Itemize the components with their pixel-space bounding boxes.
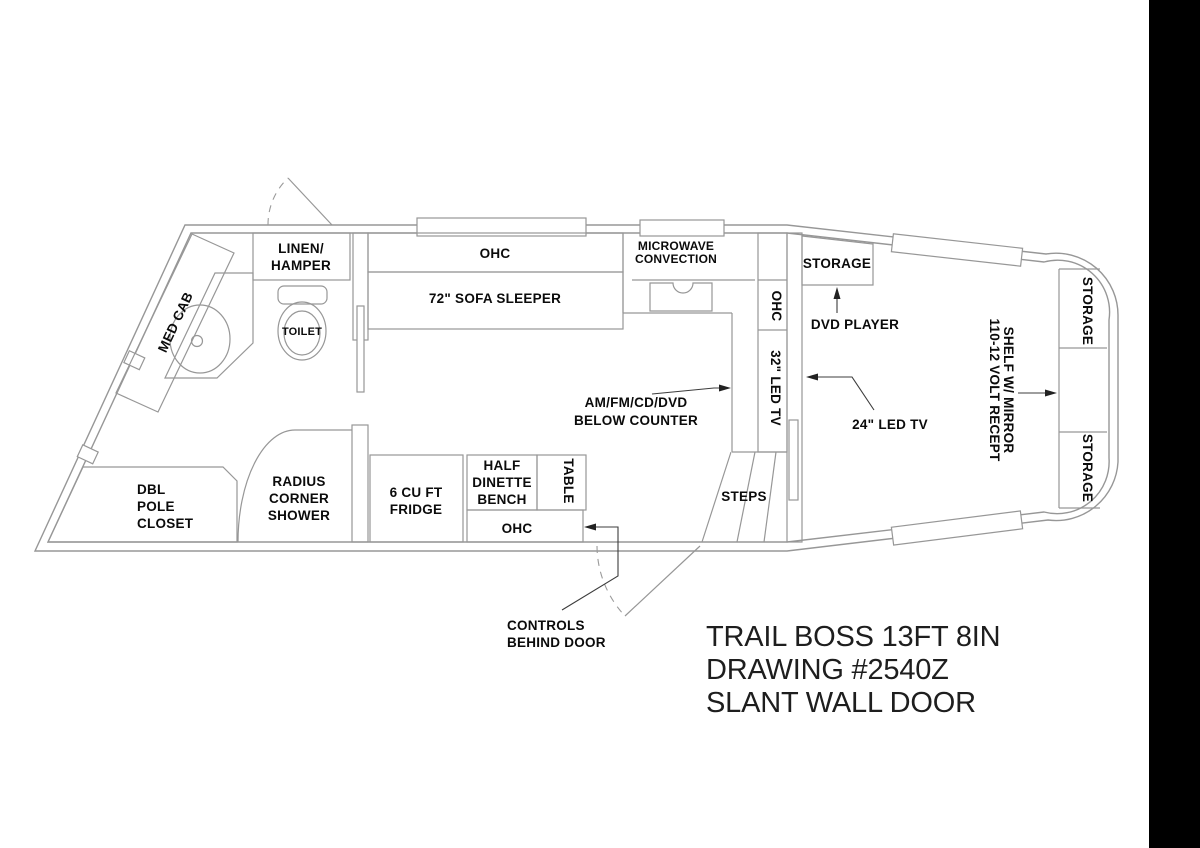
scan-edge-bar — [1149, 0, 1200, 848]
bath-pocket-door — [357, 306, 364, 392]
tv24-label: 24" LED TV — [852, 417, 928, 432]
dvd-label: DVD PLAYER — [811, 317, 899, 332]
closet-label-3: CLOSET — [137, 516, 194, 531]
radio-label-1: AM/FM/CD/DVD — [585, 395, 688, 410]
controls-label-2: BEHIND DOOR — [507, 635, 606, 650]
window-top-center — [640, 220, 724, 236]
microwave-label-2: CONVECTION — [635, 252, 717, 266]
table-label: TABLE — [561, 458, 576, 503]
title-line-1: TRAIL BOSS 13FT 8IN — [706, 621, 1000, 653]
controls-label-1: CONTROLS — [507, 618, 585, 633]
partition-door-panel — [789, 420, 798, 500]
dinette-label-1: HALF — [484, 458, 521, 473]
sofa-label: 72" SOFA SLEEPER — [429, 291, 561, 306]
fridge-label-1: 6 CU FT — [390, 485, 443, 500]
wall-ohc-label: OHC — [769, 291, 784, 322]
rear-storage-top-label: STORAGE — [1080, 277, 1095, 345]
shower-label-2: CORNER — [269, 491, 329, 506]
rear-storage-bottom-label: STORAGE — [1080, 434, 1095, 502]
shower-label-1: RADIUS — [272, 474, 325, 489]
title-line-2: DRAWING #2540Z — [706, 654, 949, 686]
sofa-ohc-label: OHC — [480, 246, 511, 261]
shower-label-3: SHOWER — [268, 508, 330, 523]
toilet-label: TOILET — [282, 326, 322, 338]
galley-storage-label: STORAGE — [803, 256, 871, 271]
dinette-label-2: DINETTE — [472, 475, 532, 490]
microwave-label-1: MICROWAVE — [638, 239, 714, 253]
closet-label-1: DBL — [137, 482, 166, 497]
radio-label-2: BELOW COUNTER — [574, 413, 698, 428]
steps-label: STEPS — [721, 489, 767, 504]
tv32-label: 32" LED TV — [768, 350, 783, 426]
fridge-label-2: FRIDGE — [390, 502, 443, 517]
floorplan-drawing: MED CAB LINEN/ HAMPER TOILET OHC 72" SOF… — [0, 0, 1200, 848]
dinette-ohc-label: OHC — [502, 521, 533, 536]
shelf-label-2: 110-12 VOLT RECEPT — [987, 318, 1002, 462]
closet-label-2: POLE — [137, 499, 175, 514]
floorplan-sheet: MED CAB LINEN/ HAMPER TOILET OHC 72" SOF… — [0, 0, 1200, 848]
shelf-label-1: SHELF W/ MIRROR — [1001, 327, 1016, 454]
linen-label-2: HAMPER — [271, 258, 331, 273]
linen-label-1: LINEN/ — [278, 241, 324, 256]
title-line-3: SLANT WALL DOOR — [706, 687, 976, 719]
dinette-label-3: BENCH — [477, 492, 526, 507]
toilet-tank — [278, 286, 327, 304]
